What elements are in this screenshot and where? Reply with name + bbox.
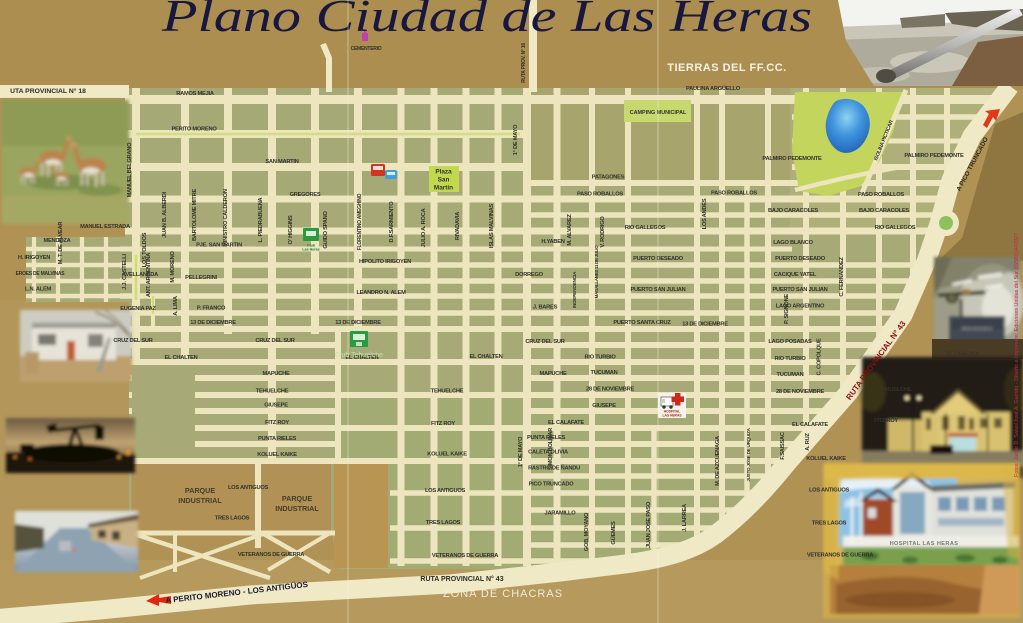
svg-text:FITZ ROY: FITZ ROY: [874, 418, 898, 424]
svg-text:13 DE DICIEMBRE: 13 DE DICIEMBRE: [682, 321, 728, 327]
svg-text:SIMON BOLIVAR: SIMON BOLIVAR: [548, 428, 554, 470]
svg-text:TRES LAGOS: TRES LAGOS: [812, 520, 847, 526]
svg-text:1° DE MAYO: 1° DE MAYO: [518, 436, 524, 467]
svg-text:CRUZ DEL SUR: CRUZ DEL SUR: [525, 339, 564, 345]
svg-text:TRES LAGOS: TRES LAGOS: [215, 515, 250, 521]
svg-text:PALMIRO PEDEMONTE: PALMIRO PEDEMONTE: [762, 156, 822, 162]
svg-text:LOS ANTIGUOS: LOS ANTIGUOS: [425, 488, 466, 494]
svg-text:TEHUELCHE: TEHUELCHE: [431, 388, 464, 394]
svg-text:M. MORENO: M. MORENO: [170, 251, 176, 283]
svg-text:ZONA DE CHACRAS: ZONA DE CHACRAS: [443, 588, 563, 600]
svg-text:PATAGONES: PATAGONES: [592, 174, 625, 180]
svg-text:J. BARES: J. BARES: [533, 304, 558, 310]
svg-text:EL CHALTEN: EL CHALTEN: [470, 354, 503, 360]
svg-text:INDEPENDENCIA: INDEPENDENCIA: [572, 271, 578, 308]
svg-text:RIO TURBIO: RIO TURBIO: [585, 354, 617, 360]
svg-text:JARAMILLO: JARAMILLO: [545, 510, 577, 516]
svg-text:MAGALLANES 11 DE JULIO: MAGALLANES 11 DE JULIO: [594, 245, 599, 299]
svg-text:LOS ANDES: LOS ANDES: [702, 198, 708, 229]
svg-text:M. DE AZCUENAGA: M. DE AZCUENAGA: [715, 436, 721, 486]
svg-text:JUAN B. ALBERDI: JUAN B. ALBERDI: [162, 192, 168, 238]
svg-text:PUNTA RIELES: PUNTA RIELES: [258, 436, 297, 442]
svg-text:LAGO POSADAS: LAGO POSADAS: [768, 339, 812, 345]
svg-text:J.J. CASTELLI: J.J. CASTELLI: [122, 254, 128, 290]
svg-text:PARQUE: PARQUE: [282, 494, 312, 503]
svg-text:San: San: [438, 177, 450, 184]
svg-text:BIENVENIDOS: BIENVENIDOS: [962, 326, 993, 331]
svg-text:RIO TURBIO: RIO TURBIO: [775, 356, 807, 362]
svg-text:13 DE DICIEMBRE: 13 DE DICIEMBRE: [190, 320, 236, 326]
svg-text:ISLAS MALVINAS: ISLAS MALVINAS: [489, 203, 495, 248]
svg-text:GREGORES: GREGORES: [290, 192, 321, 198]
svg-text:Las Heras: Las Heras: [302, 248, 319, 252]
svg-text:H. IRIGOYEN: H. IRIGOYEN: [18, 255, 50, 261]
svg-text:PELLEGRINI: PELLEGRINI: [185, 275, 217, 281]
svg-text:28 DE NOVIEMBRE: 28 DE NOVIEMBRE: [586, 386, 635, 392]
svg-text:EL CALAFATE: EL CALAFATE: [792, 422, 828, 428]
svg-text:RUTA PROV. N° 16: RUTA PROV. N° 16: [521, 43, 527, 83]
svg-text:M. T. DE ALVEAR: M. T. DE ALVEAR: [58, 222, 64, 265]
svg-text:PASO ROBALLOS: PASO ROBALLOS: [577, 191, 623, 197]
svg-text:PASO ROBALLOS: PASO ROBALLOS: [858, 192, 904, 198]
svg-text:DORREGO: DORREGO: [515, 272, 543, 278]
svg-text:PJE. SAN MARTIN: PJE. SAN MARTIN: [196, 242, 242, 248]
svg-text:FITZ ROY: FITZ ROY: [431, 421, 455, 427]
svg-text:L. PIEDRABUENA: L. PIEDRABUENA: [258, 197, 264, 242]
svg-text:INDUSTRIAL: INDUSTRIAL: [275, 504, 319, 513]
svg-text:M. ALVAREZ: M. ALVAREZ: [567, 214, 573, 246]
svg-text:LOS ANTIGUOS: LOS ANTIGUOS: [228, 485, 269, 491]
svg-text:TUCUMAN: TUCUMAN: [591, 370, 618, 376]
svg-text:BAJO CARACOLES: BAJO CARACOLES: [768, 208, 818, 214]
svg-text:PASO ROBALLOS: PASO ROBALLOS: [711, 190, 757, 196]
svg-text:H.YABEN: H.YABEN: [541, 239, 564, 245]
svg-text:EL CHALTEN: EL CHALTEN: [165, 355, 198, 361]
svg-text:HIPOLITO IRIGOYEN: HIPOLITO IRIGOYEN: [359, 259, 411, 265]
svg-text:PUERTO DESEADO: PUERTO DESEADO: [775, 256, 826, 262]
svg-text:GIUSEPE: GIUSEPE: [592, 403, 616, 409]
svg-text:RAMOS MEJIA: RAMOS MEJIA: [176, 91, 214, 97]
svg-text:F.SAISSAC: F.SAISSAC: [780, 432, 786, 460]
svg-text:Club Tehuelche: Club Tehuelche: [335, 352, 383, 359]
svg-text:TEHUELCHE: TEHUELCHE: [879, 387, 912, 393]
svg-text:EL CALAFATE: EL CALAFATE: [548, 420, 584, 426]
svg-text:LOS ANTIGUOS: LOS ANTIGUOS: [809, 487, 850, 493]
svg-text:MANUEL ESTRADA: MANUEL ESTRADA: [80, 224, 130, 230]
svg-text:INDUSTRIAL: INDUSTRIAL: [178, 496, 222, 505]
svg-text:BARTOLOME MITRE: BARTOLOME MITRE: [192, 189, 198, 242]
svg-text:GOB. MOYANO: GOB. MOYANO: [584, 512, 590, 551]
svg-text:MAPUCHE: MAPUCHE: [539, 371, 566, 377]
svg-text:VETERANOS DE GUERRA: VETERANOS DE GUERRA: [807, 552, 873, 558]
svg-text:LAGO BLANCO: LAGO BLANCO: [773, 240, 813, 246]
svg-text:CRUZ DEL SUR: CRUZ DEL SUR: [255, 338, 294, 344]
svg-text:A. LIMA: A. LIMA: [173, 296, 179, 316]
svg-text:PERITO MORENO: PERITO MORENO: [172, 126, 218, 132]
svg-text:SAN MARTIN: SAN MARTIN: [265, 159, 298, 165]
svg-text:ANT. ARGENTINA: ANT. ARGENTINA: [146, 253, 152, 297]
svg-text:TUCUMAN: TUCUMAN: [777, 372, 804, 378]
svg-text:GIUSEPE: GIUSEPE: [264, 402, 288, 408]
svg-text:MAPUCHE: MAPUCHE: [262, 371, 289, 377]
svg-text:PUERTO SANTA CRUZ: PUERTO SANTA CRUZ: [613, 320, 671, 326]
svg-text:TRES LAGOS: TRES LAGOS: [426, 520, 461, 526]
svg-text:CACIQUE YATEL: CACIQUE YATEL: [774, 272, 817, 278]
svg-text:MANUEL BELGRANO: MANUEL BELGRANO: [127, 142, 133, 197]
svg-text:JULIO A. ROCA: JULIO A. ROCA: [421, 208, 427, 247]
svg-text:RIO GALLEGOS: RIO GALLEGOS: [875, 225, 916, 231]
svg-text:VETERANOS DE GUERRA: VETERANOS DE GUERRA: [432, 553, 498, 559]
svg-text:RIO GALLEGOS: RIO GALLEGOS: [625, 225, 666, 231]
svg-text:FLORENTINO AMEGHINO: FLORENTINO AMEGHINO: [357, 193, 363, 250]
svg-text:LEANDRO N. ALEM: LEANDRO N. ALEM: [356, 290, 406, 296]
svg-text:Plano Ciudad de Las Heras: Plano Ciudad de Las Heras: [161, 0, 812, 41]
svg-text:PUNTA RIELES: PUNTA RIELES: [527, 435, 566, 441]
svg-text:RASTRO DE ÑANDU: RASTRO DE ÑANDU: [528, 464, 580, 471]
svg-text:HOSPITAL LAS HERAS: HOSPITAL LAS HERAS: [890, 541, 959, 547]
svg-text:Fotos: Jaime D. Salas/José A.: Fotos: Jaime D. Salas/José A. Garrido - …: [1014, 233, 1020, 477]
svg-text:PARQUE: PARQUE: [185, 486, 215, 495]
svg-text:RIVADAVIA: RIVADAVIA: [455, 212, 461, 240]
svg-text:EROES DE MALVINAS: EROES DE MALVINAS: [16, 271, 66, 277]
svg-text:PICO TRUNCADO: PICO TRUNCADO: [529, 481, 575, 487]
svg-text:C. FERNANDEZ: C. FERNANDEZ: [839, 257, 845, 297]
svg-text:LAS HERAS: LAS HERAS: [662, 414, 682, 418]
svg-text:FITZ ROY: FITZ ROY: [265, 420, 289, 426]
svg-text:Plaza: Plaza: [435, 169, 452, 176]
svg-text:O' HIGGINS: O' HIGGINS: [288, 215, 294, 244]
svg-text:TEHUELCHE: TEHUELCHE: [256, 388, 289, 394]
svg-text:RUTA PROVINCIAL N° 43: RUTA PROVINCIAL N° 43: [420, 575, 503, 583]
svg-text:D.F.SARMIENTO: D.F.SARMIENTO: [389, 201, 395, 243]
svg-text:13 DE DICIEMBRE: 13 DE DICIEMBRE: [335, 320, 381, 326]
svg-text:EL CHALTEN: EL CHALTEN: [947, 351, 980, 357]
svg-text:JUAN JOSE PASO: JUAN JOSE PASO: [646, 501, 652, 548]
svg-text:P. FRANCO: P. FRANCO: [197, 305, 226, 311]
svg-text:C. COPOLQUE: C. COPOLQUE: [817, 338, 823, 376]
svg-text:1° DE MAYO: 1° DE MAYO: [513, 124, 519, 155]
svg-text:BAJO CARACOLES: BAJO CARACOLES: [859, 208, 909, 214]
svg-text:CRUZ DEL SUR: CRUZ DEL SUR: [113, 338, 152, 344]
svg-text:PAULINA ARGÜELLO: PAULINA ARGÜELLO: [686, 85, 741, 92]
svg-text:L.N. ALEM: L.N. ALEM: [25, 286, 51, 292]
svg-text:CEMENTERIO: CEMENTERIO: [351, 46, 382, 52]
svg-text:V. RODRIGO: V. RODRIGO: [600, 216, 606, 248]
svg-text:KOLUEL KAIKE: KOLUEL KAIKE: [427, 451, 467, 457]
svg-text:PUERTO SAN JULIAN: PUERTO SAN JULIAN: [772, 287, 827, 293]
svg-text:J. LARREA: J. LARREA: [682, 504, 688, 532]
svg-text:UTA PROVINCIAL N° 18: UTA PROVINCIAL N° 18: [10, 87, 86, 95]
svg-text:28 DE NOVIEMBRE: 28 DE NOVIEMBRE: [776, 389, 825, 395]
svg-text:PALMIRO PEDEMONTE: PALMIRO PEDEMONTE: [904, 153, 964, 159]
svg-text:P. SIGNONE: P. SIGNONE: [784, 294, 790, 324]
svg-text:GÜEMES: GÜEMES: [610, 521, 617, 545]
svg-text:A. RUZ: A. RUZ: [805, 433, 811, 451]
svg-text:MINISTRO CALDERON: MINISTRO CALDERON: [223, 189, 229, 247]
svg-text:KOLUEL KAIKE: KOLUEL KAIKE: [806, 456, 846, 462]
svg-text:JUSTO JOSE DE URQUIZA: JUSTO JOSE DE URQUIZA: [746, 427, 751, 481]
svg-text:GUIDO SPANO: GUIDO SPANO: [323, 211, 329, 249]
svg-text:VETERANOS DE GUERRA: VETERANOS DE GUERRA: [238, 552, 304, 558]
svg-text:KOLUEL KAIKE: KOLUEL KAIKE: [257, 452, 297, 458]
svg-text:EUGENIA PAZ: EUGENIA PAZ: [120, 306, 156, 312]
svg-text:Martín: Martín: [434, 185, 453, 192]
svg-text:TIERRAS DEL FF.CC.: TIERRAS DEL FF.CC.: [667, 62, 786, 74]
